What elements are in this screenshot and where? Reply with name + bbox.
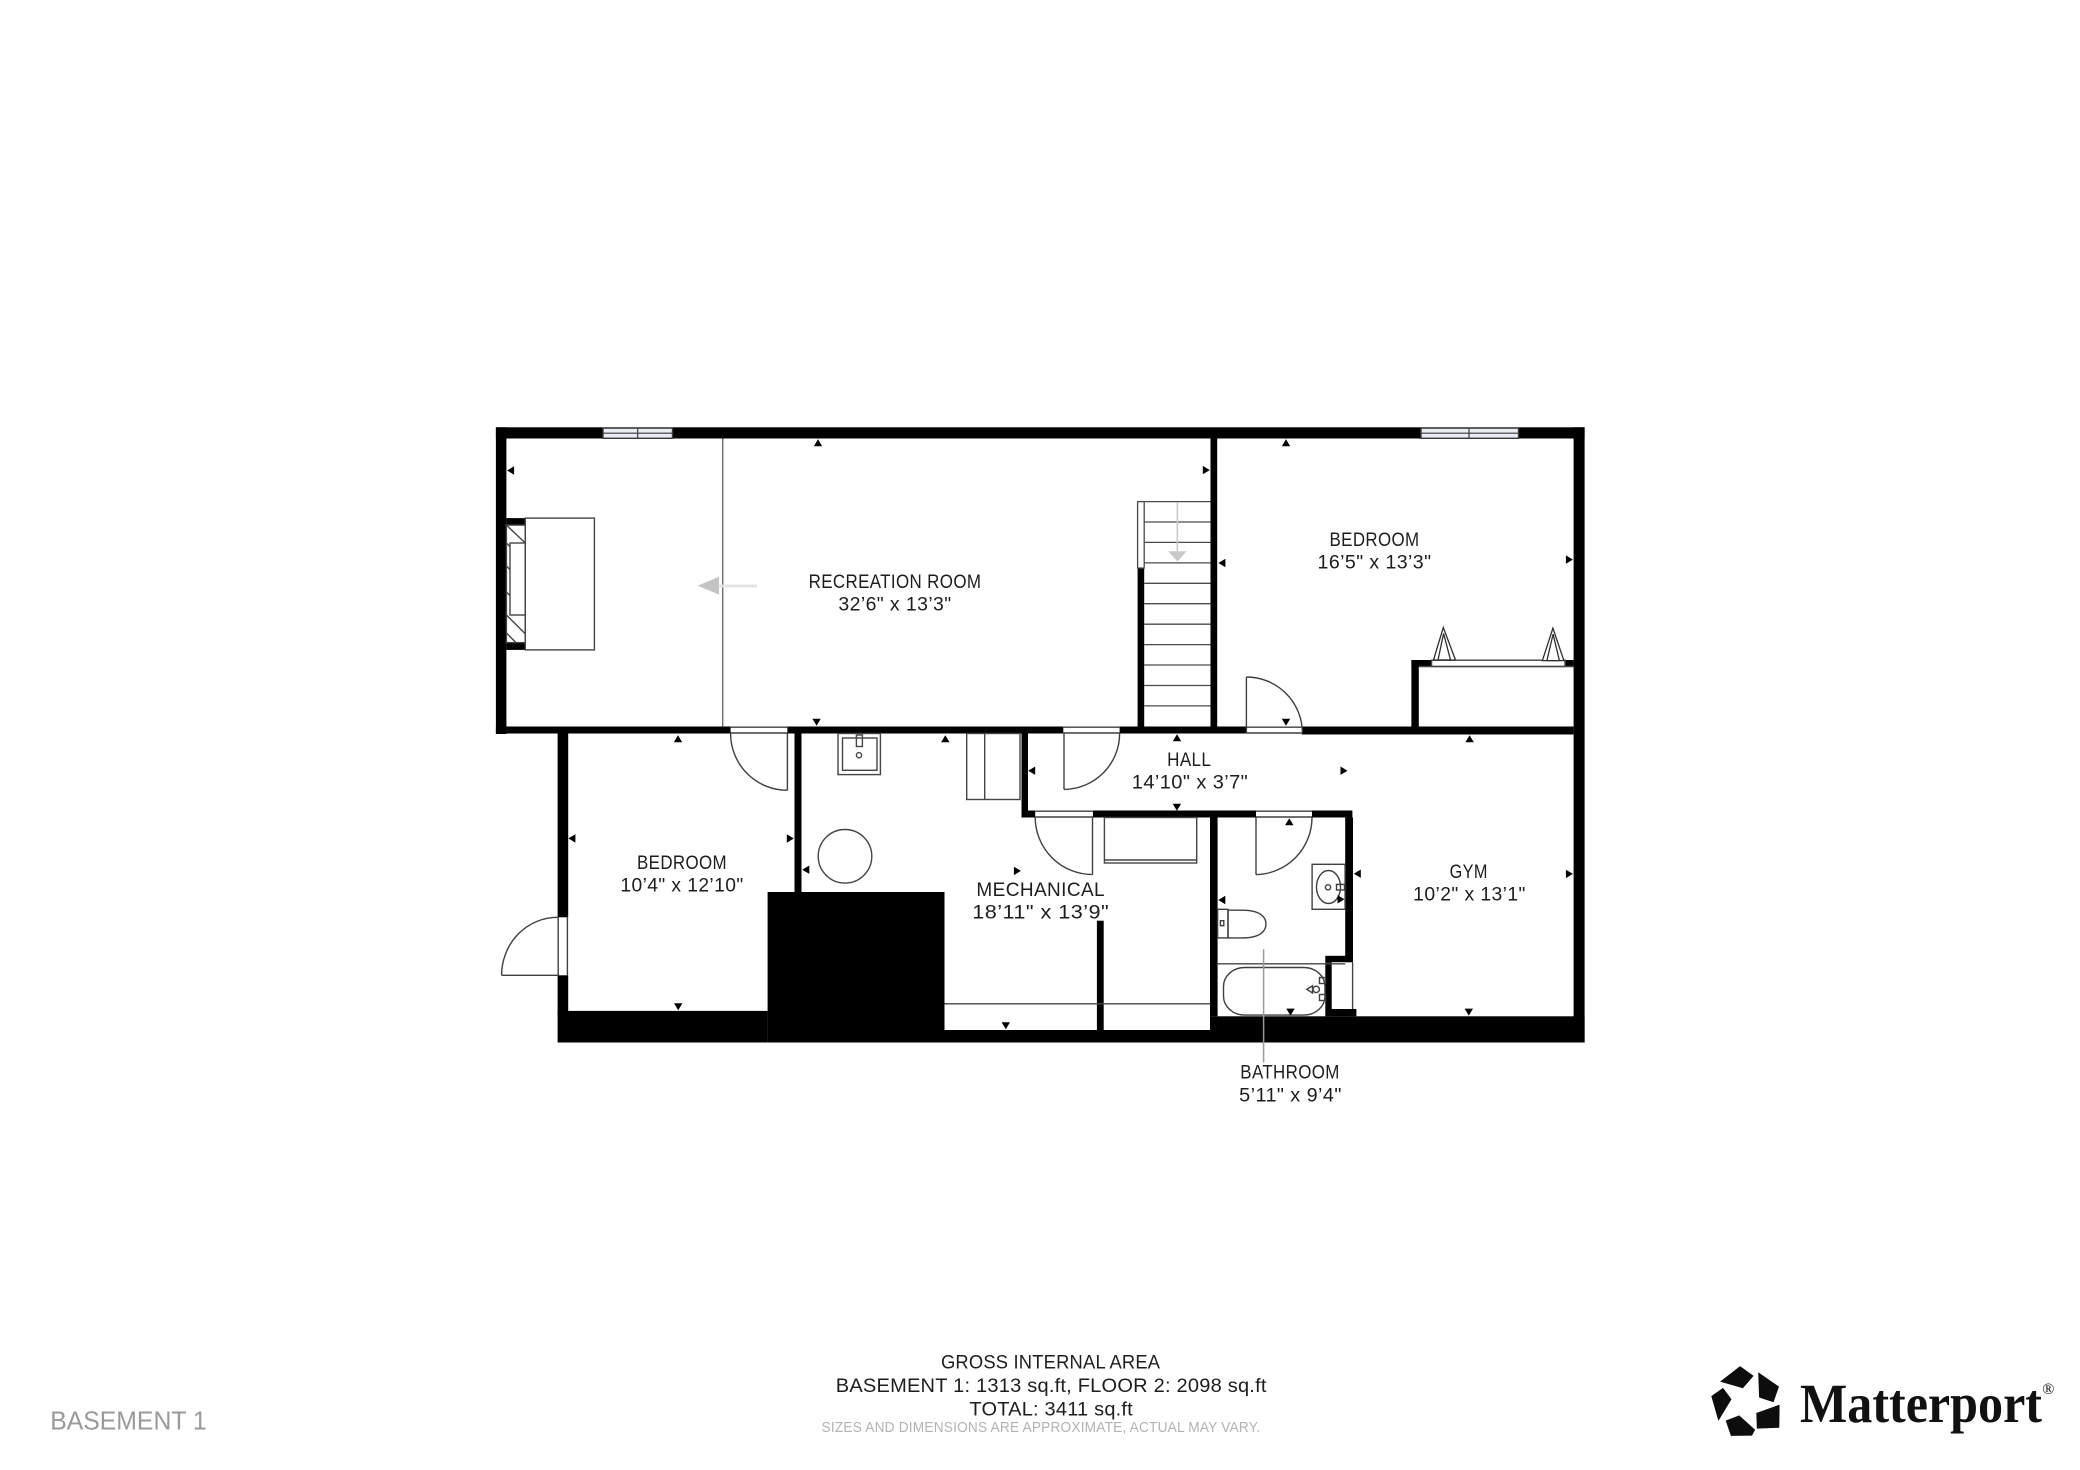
svg-text:GROSS INTERNAL AREA: GROSS INTERNAL AREA: [941, 1353, 1160, 1374]
svg-text:BATHROOM: BATHROOM: [1240, 1063, 1339, 1084]
svg-text:HALL: HALL: [1167, 750, 1211, 771]
svg-text:32’6" x 13’3": 32’6" x 13’3": [838, 595, 951, 616]
svg-text:16’5" x 13’3": 16’5" x 13’3": [1318, 553, 1432, 574]
svg-text:18’11" x 13’9": 18’11" x 13’9": [972, 903, 1109, 924]
svg-text:®: ®: [2042, 1381, 2054, 1398]
svg-text:RECREATION ROOM: RECREATION ROOM: [809, 572, 982, 593]
svg-text:Matterport: Matterport: [1800, 1373, 2043, 1434]
svg-text:BEDROOM: BEDROOM: [637, 853, 727, 874]
svg-text:BASEMENT 1: BASEMENT 1: [50, 1406, 207, 1436]
svg-text:BEDROOM: BEDROOM: [1330, 530, 1420, 551]
svg-text:SIZES AND DIMENSIONS ARE APPRO: SIZES AND DIMENSIONS ARE APPROXIMATE, AC…: [822, 1420, 1261, 1436]
svg-text:14’10" x 3’7": 14’10" x 3’7": [1132, 773, 1248, 794]
svg-text:5’11" x 9’4": 5’11" x 9’4": [1239, 1085, 1342, 1106]
svg-text:10’2" x 13’1": 10’2" x 13’1": [1413, 885, 1526, 906]
svg-text:MECHANICAL: MECHANICAL: [976, 880, 1105, 901]
svg-text:TOTAL: 3411 sq.ft: TOTAL: 3411 sq.ft: [969, 1399, 1133, 1420]
svg-text:10’4" x 12’10": 10’4" x 12’10": [620, 876, 743, 897]
svg-text:GYM: GYM: [1450, 862, 1488, 883]
svg-text:BASEMENT 1: 1313 sq.ft, FLOOR: BASEMENT 1: 1313 sq.ft, FLOOR 2: 2098 sq…: [836, 1376, 1267, 1397]
